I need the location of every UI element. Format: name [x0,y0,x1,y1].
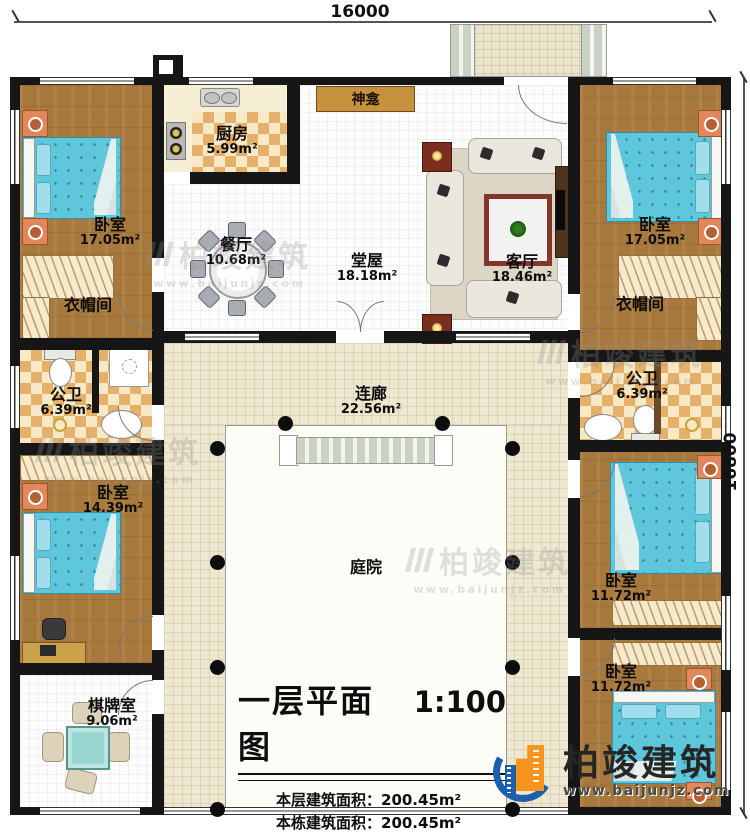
headboard [23,138,35,218]
floor-drain [685,418,699,432]
window [10,110,20,184]
chimney-flue [159,60,173,74]
dimension-right-label: 16800 [721,432,741,491]
title-block: 一层平面图 1:100 本层建筑面积：200.45m² 本栋建筑面积：200.4… [238,676,506,836]
wall-cloak-bath-left [10,338,164,350]
room-label-cloak-left: 衣帽间 [64,297,112,314]
wall-bath-bed-right [580,440,731,452]
cushion [437,254,451,268]
watermark-logo-icon [35,438,65,462]
nightstand [22,218,48,245]
sofa [426,170,464,286]
lamp-icon [28,225,43,240]
wall-right-wing [568,398,580,460]
lamp-icon [704,117,719,132]
plant-icon [510,221,526,237]
shrine: 神龛 [316,86,415,112]
pillow [36,519,51,551]
blanket-fold [611,134,633,218]
cushion [437,184,451,198]
watermark-logo-icon [145,242,175,266]
lamp-icon [432,151,442,161]
pillow [36,557,51,589]
dimension-line-right [743,78,745,815]
room-label-chess: 棋牌室9.06m² [86,697,137,729]
window [613,77,696,85]
kitchen-sink [200,88,240,107]
room-label-kitchen: 厨房5.99m² [206,125,257,157]
wall-kitchen-bottom [190,172,300,184]
drawing-scale: 1:100 [414,685,506,719]
pillow [695,521,710,563]
lamp-icon [28,117,43,132]
room-label-cloak-right: 衣帽间 [616,296,664,313]
lamp-icon [704,225,719,240]
window [40,77,134,85]
watermark: 柏竣建筑 www.baijunjz.com [540,330,703,388]
window [40,807,140,815]
stove [166,122,186,160]
shower [109,348,149,387]
shower-head-icon [122,359,137,374]
pillow [36,182,51,214]
cushion [506,291,520,305]
pillow [621,704,657,719]
window [185,333,259,341]
room-label-corridor: 连廊22.56m² [341,385,401,417]
lamp-icon [703,462,718,477]
sink-basin [204,92,220,104]
pillow [36,144,51,176]
blanket-fold [615,464,639,570]
column-dot [210,555,225,570]
wall-bed-chess-left [10,663,164,675]
logo-tower-icon [505,765,516,795]
watermark-logo-icon [537,340,567,364]
room-label-courtyard: 庭院 [350,559,382,576]
window [189,77,253,85]
brand-website: www.baijunjz.com [563,783,730,799]
pillow [695,473,710,515]
column-dot [505,660,520,675]
sink-basin [221,92,237,104]
headboard [23,513,35,593]
bed [22,137,121,219]
sofa [466,280,562,318]
dimension-top-label: 16000 [330,2,389,22]
bed [606,132,724,222]
blanket-fold [94,139,116,215]
sofa [468,138,562,174]
chair [108,732,130,762]
step-treads [296,437,436,464]
window [456,333,530,341]
column-dot [278,416,293,431]
room-label-living: 客厅18.46m² [492,253,552,285]
room-label-main-hall: 堂屋18.18m² [337,252,397,284]
wardrobe [618,255,724,299]
office-chair [42,618,66,640]
title-underline [238,773,506,781]
watermark-logo-icon [405,548,435,572]
room-label-bath-left: 公卫6.39m² [40,386,91,418]
room-label-bedroom-br-upper: 卧室11.72m² [591,572,651,604]
burner [170,143,182,155]
wardrobe [22,255,114,299]
window [721,110,731,184]
watermark: 柏竣建筑 www.baijunjz.com [148,232,311,290]
page-title: 一层平面图 [238,676,396,768]
nightstand [697,455,724,479]
wardrobe [22,297,50,341]
dining-chair [228,300,246,316]
toilet [49,358,72,387]
brand-logo-icon [492,741,554,803]
pillow [665,704,701,719]
stat-building-area: 本栋建筑面积：200.45m² [276,812,506,835]
floor-plan: 16000 16800 [0,0,750,836]
nightstand [22,110,48,137]
window [10,366,20,428]
laptop [40,645,56,656]
wall-left-wing [152,714,164,807]
column-dot [210,660,225,675]
window [10,556,20,640]
lamp-icon [692,675,707,690]
column-dot [505,802,520,817]
room-label-bedroom-top-left: 卧室17.05m² [80,216,140,248]
logo-windows-icon [533,750,539,786]
brand-name: 柏竣建筑 [563,745,730,783]
window [721,596,731,670]
nightstand [686,668,712,690]
watermark: 柏竣建筑 www.baijunjz.com [38,428,201,486]
pillow [695,141,710,175]
step-landing [434,435,453,466]
watermark: 柏竣建筑 www.baijunjz.com [408,538,571,596]
lamp-icon [28,490,43,505]
brand-logo: 柏竣建筑 www.baijunjz.com [492,741,730,803]
porch-landing [474,24,583,77]
room-label-bedroom-br-lower: 卧室11.72m² [591,663,651,695]
pillow [695,179,710,213]
porch-steps-left [450,24,476,77]
bath-partition-left [92,347,99,413]
bathroom-sink [584,414,622,441]
cushion [532,147,546,161]
column-dot [435,416,450,431]
chair [42,732,64,762]
courtyard-steps [279,435,451,464]
column-dot [505,441,520,456]
hall-door-opening [336,331,384,343]
side-table [422,142,452,172]
tv-screen [556,190,565,230]
room-label-bedroom-mid-left: 卧室14.39m² [83,484,143,516]
column-dot [210,441,225,456]
column-dot [210,802,225,817]
entry-porch [448,22,607,77]
porch-steps-right [581,24,607,77]
entry-door-opening [504,77,568,85]
bed [22,512,121,594]
room-label-bedroom-top-right: 卧室17.05m² [625,216,685,248]
wall-right-wing [568,85,580,294]
burner [170,127,182,139]
wall-kitchen-right [287,85,300,175]
stat-floor-area: 本层建筑面积：200.45m² [276,789,506,812]
shrine-label: 神龛 [352,89,380,109]
blanket-fold [94,514,116,590]
cushion [480,147,494,161]
nightstand [22,483,48,510]
mahjong-table [66,726,110,770]
